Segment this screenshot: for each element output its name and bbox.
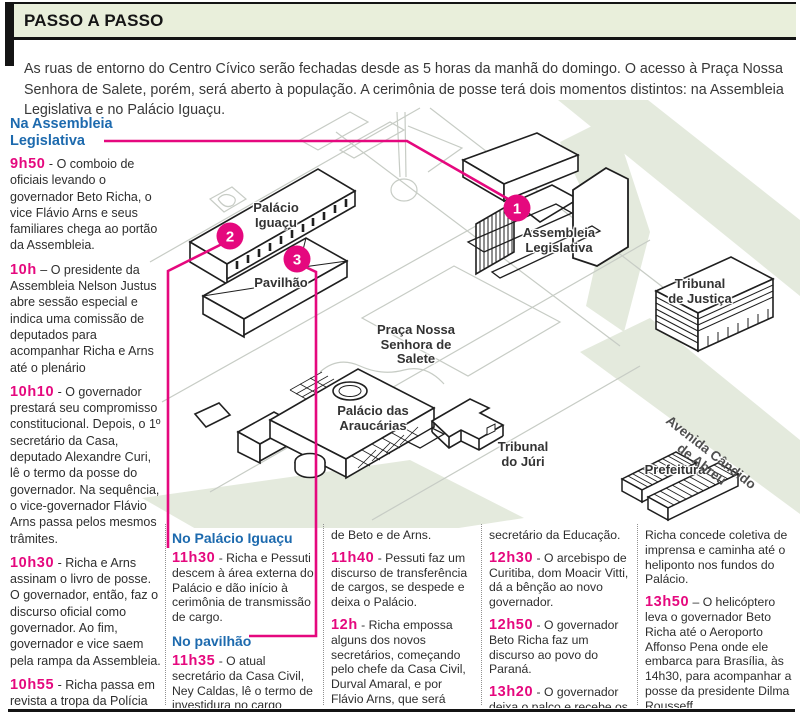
timeline-event: 11h35 - O atual secretário da Casa Civil… (172, 654, 316, 708)
section-heading-assembleia: Na Assembleia Legislativa (10, 116, 162, 150)
column-divider (165, 524, 166, 705)
timeline-event: Richa concede coletiva de imprensa e cam… (645, 528, 793, 587)
small-block (195, 403, 230, 427)
timeline-left-column: Na Assembleia Legislativa 9h50 - O combo… (10, 116, 162, 708)
event-time: 12h30 (489, 550, 533, 566)
event-time: 11h40 (331, 550, 374, 566)
marker-2-number: 2 (226, 229, 234, 246)
left-events: 9h50 - O comboio de oficiais levando o g… (10, 156, 162, 708)
timeline-event: 12h50 - O governador Beto Richa faz um d… (489, 618, 630, 677)
event-time: 10h55 (10, 677, 54, 693)
timeline-event: de Beto e de Arns. (331, 528, 474, 543)
marker-3-circle (284, 246, 311, 273)
timeline-event: 13h50 – O helicóptero leva o governador … (645, 595, 793, 708)
column-divider (481, 524, 482, 705)
label-tribunal-juri: Tribunal do Júri (483, 440, 563, 469)
timeline-event: 10h30 - Richa e Arns assinam o livro de … (10, 555, 162, 669)
event-time: 11h30 (172, 550, 215, 566)
timeline-event: 10h10 - O governador prestará seu compro… (10, 384, 162, 547)
event-time: 13h20 (489, 684, 533, 700)
event-time: 12h (331, 617, 358, 633)
event-time: 11h35 (172, 653, 215, 669)
header-accent-bar (5, 2, 14, 66)
label-pavilhao: Pavilhão (231, 276, 331, 291)
event-time: 12h50 (489, 617, 533, 633)
timeline-event: 12h - Richa empossa alguns dos novos sec… (331, 618, 474, 707)
map-roads (150, 108, 716, 520)
marker-1-number: 1 (513, 201, 521, 218)
intro-paragraph: As ruas de entorno do Centro Cívico serã… (24, 59, 786, 121)
label-assembleia-legislativa: Assembleia Legislativa (509, 226, 609, 255)
event-time: 10h30 (10, 555, 54, 571)
label-praca-salete: Praça Nossa Senhora de Salete (356, 323, 476, 367)
timeline-event: 11h40 - Pessuti faz um discurso de trans… (331, 551, 474, 610)
page-title: PASSO A PASSO (24, 11, 164, 31)
building-assembleia (463, 133, 628, 278)
label-palacio-araucarias: Palácio das Araucárias (313, 404, 433, 433)
timeline-column-2: No Palácio Iguaçu11h30 - Richa e Pessuti… (172, 528, 316, 708)
event-time: 10h (10, 262, 37, 278)
timeline-column-4: secretário da Educação.12h30 - O arcebis… (489, 528, 630, 708)
label-palacio-iguacu: Palácio Iguaçu (226, 201, 326, 230)
infographic-page: PASSO A PASSO As ruas de entorno do Cent… (0, 0, 800, 721)
timeline-event: 13h20 - O governador deixa o palco e rec… (489, 685, 630, 708)
header-underline (14, 37, 796, 40)
column-divider (637, 524, 638, 705)
timeline-event: 11h30 - Richa e Pessuti descem à área ex… (172, 551, 316, 625)
bottom-rule (8, 709, 795, 712)
timeline-event: 12h30 - O arcebispo de Curitiba, dom Moa… (489, 551, 630, 610)
label-avenida-candido-abreu: Avenida Cândido de Abreu (634, 398, 778, 519)
marker-1-circle (504, 195, 531, 222)
timeline-event: 10h55 - Richa passa em revista a tropa d… (10, 677, 162, 708)
timeline-column-5: Richa concede coletiva de imprensa e cam… (645, 528, 793, 708)
label-tribunal-justica: Tribunal de Justiça (650, 277, 750, 306)
column-divider (323, 524, 324, 705)
section-heading: No Palácio Iguaçu (172, 530, 316, 546)
timeline-event: secretário da Educação. (489, 528, 630, 543)
event-time: 9h50 (10, 156, 45, 172)
marker-3-number: 3 (293, 252, 301, 269)
event-time: 13h50 (645, 594, 689, 610)
timeline-event: 9h50 - O comboio de oficiais levando o g… (10, 156, 162, 254)
timeline-column-3: de Beto e de Arns.11h40 - Pessuti faz um… (331, 528, 474, 708)
section-heading: No pavilhão (172, 633, 316, 649)
timeline-event: 10h – O presidente da Assembleia Nelson … (10, 262, 162, 376)
event-time: 10h10 (10, 384, 54, 400)
